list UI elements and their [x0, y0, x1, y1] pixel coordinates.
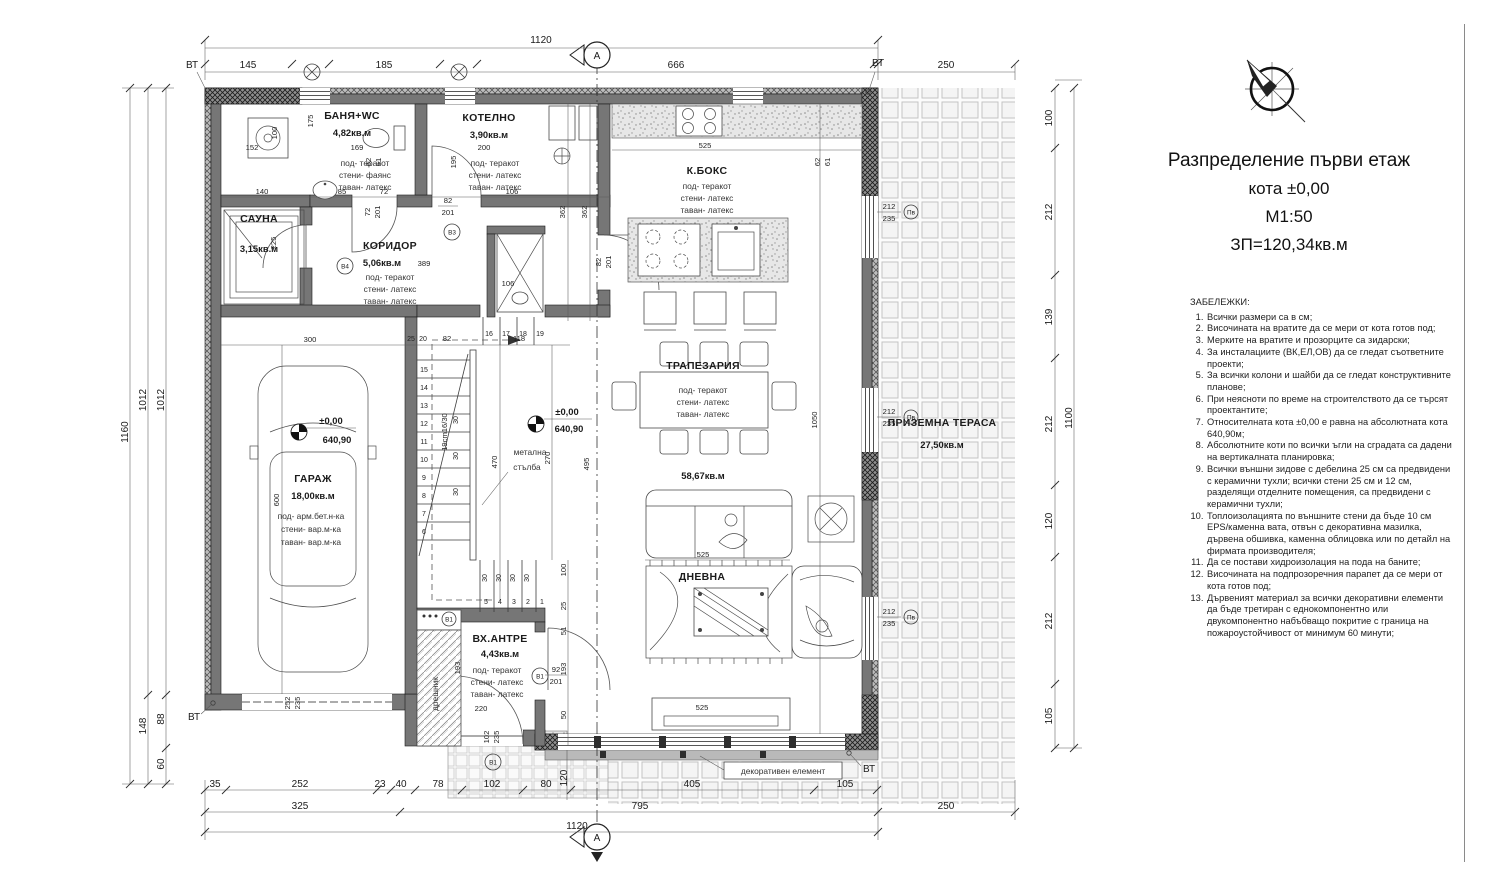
- dim: 148: [138, 717, 149, 734]
- dim: 1100: [1064, 407, 1075, 429]
- note-item: При неясноти по време на строителството …: [1206, 394, 1454, 417]
- svg-text:5: 5: [484, 599, 488, 606]
- svg-text:212: 212: [883, 407, 896, 416]
- tv-unit: [652, 698, 790, 730]
- svg-text:30: 30: [482, 574, 489, 582]
- svg-text:таван- латекс: таван- латекс: [677, 409, 730, 419]
- svg-text:ВТ: ВТ: [186, 60, 198, 71]
- kitchen-counter: [612, 104, 862, 138]
- svg-text:92: 92: [552, 665, 560, 674]
- dim: 1050: [810, 412, 819, 429]
- svg-text:ВХ.АНТРЕ: ВХ.АНТРЕ: [472, 633, 527, 645]
- svg-text:7: 7: [422, 511, 426, 518]
- svg-text:под- теракот: под- теракот: [683, 181, 732, 191]
- notes-block: ЗАБЕЛЕЖКИ: Всички размери са в см; Височ…: [1190, 297, 1454, 639]
- chaise-lounge: [792, 566, 862, 658]
- interior-walls: [221, 104, 610, 746]
- room-dnevna: ДНЕВНА: [679, 571, 726, 583]
- svg-text:таван- вар.м-ка: таван- вар.м-ка: [281, 537, 342, 547]
- svg-text:ВТ: ВТ: [872, 58, 884, 69]
- svg-text:17: 17: [502, 331, 510, 338]
- dim: 100: [270, 127, 279, 140]
- svg-text:8: 8: [422, 493, 426, 500]
- sheet-title: Разпределение първи етаж: [1160, 150, 1418, 172]
- dim: 666: [668, 60, 685, 71]
- door-tag-boiler: 82201В3: [438, 196, 460, 240]
- svg-text:стени- латекс: стени- латекс: [469, 170, 522, 180]
- svg-text:3,90кв.м: 3,90кв.м: [470, 129, 508, 140]
- svg-text:В4: В4: [341, 264, 349, 271]
- coffee-table: [694, 588, 768, 636]
- svg-text:В3: В3: [448, 230, 456, 237]
- sheet-frame-line: [1464, 24, 1465, 862]
- svg-text:ДНЕВНА: ДНЕВНА: [679, 571, 726, 583]
- dim: 1012: [138, 388, 149, 411]
- stair-spec: 19cm16/30: [440, 413, 449, 451]
- bath-sink: [313, 181, 337, 199]
- section-letter: А: [594, 833, 601, 844]
- dim: 175: [306, 115, 315, 128]
- svg-text:235: 235: [293, 697, 302, 710]
- door-tag-garage: 252235: [283, 697, 302, 710]
- dim: 80: [540, 779, 552, 790]
- svg-text:235: 235: [883, 214, 896, 223]
- svg-text:под- теракот: под- теракот: [471, 158, 520, 168]
- note-item: Да се постави хидроизолация на пода на б…: [1206, 557, 1454, 569]
- svg-text:1: 1: [540, 599, 544, 606]
- svg-text:220: 220: [475, 704, 488, 713]
- shower-tray: [497, 234, 543, 312]
- dim: 140: [256, 187, 269, 196]
- svg-text:стени- латекс: стени- латекс: [677, 397, 730, 407]
- dim: 100: [559, 564, 568, 577]
- dim: 82: [443, 334, 451, 343]
- note-item: Дървеният материал за всички декоративни…: [1206, 593, 1454, 640]
- svg-text:Пв: Пв: [907, 615, 916, 622]
- room-koridor: КОРИДОР 5,06кв.м389 под- теракотстени- л…: [363, 240, 430, 306]
- svg-text:стени- латекс: стени- латекс: [364, 284, 417, 294]
- living-area-value: 58,67кв.м: [681, 470, 725, 481]
- note-item: Височината на вратите да се мери от кота…: [1206, 323, 1454, 335]
- dim: 212: [1044, 612, 1055, 629]
- svg-text:БАНЯ+WC: БАНЯ+WC: [324, 110, 380, 122]
- dim: 23: [374, 779, 386, 790]
- svg-text:30: 30: [524, 574, 531, 582]
- dim: 212: [1044, 415, 1055, 432]
- svg-text:Пв: Пв: [907, 210, 916, 217]
- dim: 105: [1044, 707, 1055, 724]
- svg-text:252: 252: [283, 697, 292, 710]
- vt-bottom-left: ВТ: [188, 701, 215, 723]
- svg-text:ВТ: ВТ: [863, 764, 875, 775]
- note-item: За всички колони и шайби да се гледат ко…: [1206, 370, 1454, 393]
- entry-cabinet: [417, 610, 461, 630]
- dim: 40: [395, 779, 407, 790]
- dim: 193: [453, 662, 462, 675]
- note-item: Височината на подпрозоречния парапет да …: [1206, 569, 1454, 592]
- window-top-3: [733, 88, 763, 104]
- room-kboks: К.БОКС под- теракотстени- латекставан- л…: [681, 165, 734, 215]
- window-right-2: [862, 388, 878, 452]
- dim: 20: [419, 336, 427, 343]
- svg-text:4,43кв.м: 4,43кв.м: [481, 648, 519, 659]
- dim: 600: [272, 494, 281, 507]
- dim: 152: [246, 143, 259, 152]
- svg-text:15: 15: [420, 367, 428, 374]
- decorative-element-band: [545, 750, 878, 760]
- notes-heading: ЗАБЕЛЕЖКИ:: [1190, 297, 1454, 309]
- svg-text:5,06кв.м: 5,06кв.м: [363, 257, 401, 268]
- section-marker-top: А: [570, 42, 610, 68]
- side-table: [808, 496, 854, 542]
- svg-text:таван- латекс: таван- латекс: [471, 689, 524, 699]
- svg-text:стълба: стълба: [513, 462, 541, 472]
- svg-text:12: 12: [420, 421, 428, 428]
- dim: 1012: [156, 388, 167, 411]
- dim: 250: [938, 801, 955, 812]
- svg-text:10: 10: [420, 457, 428, 464]
- svg-text:САУНА: САУНА: [240, 213, 278, 225]
- svg-text:стени- латекс: стени- латекс: [471, 677, 524, 687]
- svg-text:389: 389: [418, 259, 431, 268]
- svg-text:2: 2: [526, 599, 530, 606]
- sofa: [646, 490, 792, 558]
- garage-door-opening: [242, 694, 392, 710]
- dim: 106: [502, 279, 515, 288]
- svg-text:таван- латекс: таван- латекс: [364, 296, 417, 306]
- level-marker-stairs: ±0,00 640,90: [528, 406, 592, 434]
- svg-text:К.БОКС: К.БОКС: [687, 165, 728, 177]
- note-item: Всички размери са в см;: [1206, 312, 1454, 324]
- dim: 88: [156, 713, 167, 725]
- svg-text:3: 3: [512, 599, 516, 606]
- svg-text:стени- фаянс: стени- фаянс: [339, 170, 391, 180]
- svg-text:30: 30: [453, 416, 460, 424]
- svg-text:под- теракот: под- теракот: [341, 158, 390, 168]
- dim: 362: [558, 206, 567, 219]
- dim: 35: [209, 779, 221, 790]
- svg-text:КОРИДОР: КОРИДОР: [363, 240, 417, 252]
- note-item: Абсолютните коти по всички ъгли на сград…: [1206, 440, 1454, 463]
- svg-text:4,82кв.м: 4,82кв.м: [333, 127, 371, 138]
- svg-text:ТРАПЕЗАРИЯ: ТРАПЕЗАРИЯ: [666, 360, 740, 372]
- svg-text:В1: В1: [536, 674, 544, 681]
- svg-text:235: 235: [883, 619, 896, 628]
- svg-text:30: 30: [453, 488, 460, 496]
- dim: 795: [632, 801, 649, 812]
- window-south-glazing: [558, 734, 845, 750]
- svg-text:ВТ: ВТ: [188, 712, 200, 723]
- svg-text:КОТЕЛНО: КОТЕЛНО: [462, 112, 515, 124]
- svg-text:201: 201: [604, 256, 613, 269]
- note-item: Относителната кота ±0,00 е равна на абсо…: [1206, 417, 1454, 440]
- dim: 405: [684, 779, 701, 790]
- dim: 78: [432, 779, 444, 790]
- washing-machine: [248, 118, 288, 158]
- dim: 470: [490, 456, 499, 469]
- svg-text:ПРИЗЕМНА ТЕРАСА: ПРИЗЕМНА ТЕРАСА: [888, 417, 997, 429]
- svg-text:27,50кв.м: 27,50кв.м: [920, 439, 964, 450]
- window-top-1: [300, 88, 330, 104]
- door-tag-kitchen: 82201: [594, 256, 613, 269]
- dim: 100: [1044, 109, 1055, 126]
- dim: 525: [697, 550, 710, 559]
- dim: 51: [559, 627, 568, 635]
- room-garage: ГАРАЖ18,00кв.м под- арм.бет.н-кастени- в…: [278, 473, 345, 547]
- svg-text:102: 102: [482, 731, 491, 744]
- svg-text:В1: В1: [489, 760, 497, 767]
- sheet-level: кота ±0,00: [1160, 179, 1418, 199]
- svg-text:таван- латекс: таван- латекс: [681, 205, 734, 215]
- dim: 193: [559, 663, 568, 676]
- svg-text:18,00кв.м: 18,00кв.м: [291, 490, 335, 501]
- svg-text:640,90: 640,90: [323, 434, 352, 445]
- dim: 25: [407, 336, 415, 343]
- decor-label: декоративен елемент: [741, 766, 826, 776]
- dim: 145: [240, 60, 257, 71]
- kitchen-island: [628, 218, 788, 282]
- dim: 1120: [530, 35, 552, 46]
- notes-list: Всички размери са в см; Височината на вр…: [1190, 312, 1454, 640]
- svg-text:18: 18: [519, 331, 527, 338]
- svg-text:235: 235: [492, 731, 501, 744]
- svg-text:212: 212: [883, 202, 896, 211]
- svg-text:ГАРАЖ: ГАРАЖ: [294, 473, 332, 485]
- dim: 102: [484, 779, 501, 790]
- svg-text:4: 4: [498, 599, 502, 606]
- svg-text:11: 11: [420, 439, 427, 446]
- dim: 325: [292, 801, 309, 812]
- note-item: За инсталациите (ВК,ЕЛ,ОВ) да се гледат …: [1206, 347, 1454, 370]
- dim: 525: [699, 141, 712, 150]
- dim: 120: [1044, 512, 1055, 529]
- dim: 105: [837, 779, 854, 790]
- dim: 495: [582, 458, 591, 471]
- sheet-scale: М1:50: [1160, 207, 1418, 227]
- svg-text:6: 6: [422, 529, 426, 536]
- floor-plan-sheet: А А 1120 145 185 666 250 35 252 23 40 78…: [0, 0, 1500, 884]
- dim: 120: [559, 769, 570, 786]
- svg-text:под- арм.бет.н-ка: под- арм.бет.н-ка: [278, 511, 345, 521]
- dim: 200: [478, 143, 491, 152]
- window-top-2: [445, 88, 475, 104]
- closet-label: дрешник: [430, 677, 440, 711]
- dim: 139: [1044, 308, 1055, 325]
- svg-text:82: 82: [594, 258, 603, 266]
- level-marker-garage: ±0,00 640,90: [291, 415, 356, 445]
- svg-text:640,90: 640,90: [555, 423, 584, 434]
- svg-text:16: 16: [485, 331, 493, 338]
- dim: 252: [292, 779, 309, 790]
- svg-text:19: 19: [536, 331, 544, 338]
- note-item: Всички външни зидове с дебелина 25 см са…: [1206, 464, 1454, 511]
- note-item: Топлоизолацията по външните стени да бъд…: [1206, 511, 1454, 558]
- dim: 1160: [120, 421, 131, 443]
- svg-text:стени- вар.м-ка: стени- вар.м-ка: [281, 524, 341, 534]
- svg-text:30: 30: [510, 574, 517, 582]
- note-item: Мерките на вратите и прозорците са зидар…: [1206, 335, 1454, 347]
- svg-text:14: 14: [420, 385, 428, 392]
- bar-stools: [644, 292, 776, 330]
- dim: 212: [1044, 203, 1055, 220]
- dim: 185: [376, 60, 393, 71]
- dim: 362: [580, 206, 589, 219]
- svg-text:72: 72: [363, 208, 372, 216]
- svg-text:30: 30: [496, 574, 503, 582]
- svg-text:таван- латекс: таван- латекс: [469, 182, 522, 192]
- svg-text:13: 13: [420, 403, 428, 410]
- section-letter: А: [594, 51, 601, 62]
- svg-text:61: 61: [823, 158, 832, 166]
- svg-text:под- теракот: под- теракот: [679, 385, 728, 395]
- title-block: Разпределение първи етаж кота ±0,00 М1:5…: [1160, 150, 1418, 263]
- svg-text:стени- латекс: стени- латекс: [681, 193, 734, 203]
- svg-text:9: 9: [422, 475, 426, 482]
- svg-text:201: 201: [373, 206, 382, 219]
- svg-text:под- теракот: под- теракот: [366, 272, 415, 282]
- north-compass-icon: [1245, 60, 1305, 122]
- dim: 169: [351, 143, 364, 152]
- svg-text:В1: В1: [445, 617, 453, 624]
- room-kotelno: КОТЕЛНО3,90кв.м под- теракотстени- латек…: [462, 112, 521, 192]
- svg-text:30: 30: [453, 452, 460, 460]
- svg-text:под- теракот: под- теракот: [473, 665, 522, 675]
- window-right-1: [862, 196, 878, 258]
- svg-text:±0,00: ±0,00: [555, 406, 578, 417]
- svg-text:±0,00: ±0,00: [319, 415, 342, 426]
- svg-text:3,15кв.м: 3,15кв.м: [240, 243, 278, 254]
- dim: 300: [304, 335, 317, 344]
- dim: 525: [696, 703, 709, 712]
- svg-text:82: 82: [444, 196, 452, 205]
- dim: 1120: [566, 821, 588, 832]
- room-sauna: САУНА3,15кв.м: [240, 213, 278, 254]
- svg-text:метална: метална: [514, 447, 547, 457]
- room-antre: ВХ.АНТРЕ4,43кв.м под- теракотстени- лате…: [471, 633, 528, 713]
- dim: 195: [449, 156, 458, 169]
- dim: 25: [559, 602, 568, 610]
- svg-text:201: 201: [442, 208, 455, 217]
- dim: 250: [938, 60, 955, 71]
- svg-text:212: 212: [883, 607, 896, 616]
- dim: 60: [156, 758, 167, 770]
- window-right-3: [862, 597, 878, 660]
- sheet-area: ЗП=120,34кв.м: [1160, 235, 1418, 255]
- svg-text:62: 62: [813, 158, 822, 166]
- vt-top-left: ВТ: [186, 60, 209, 92]
- dim: 50: [559, 711, 568, 719]
- svg-text:201: 201: [550, 677, 563, 686]
- svg-text:таван- латекс: таван- латекс: [339, 182, 392, 192]
